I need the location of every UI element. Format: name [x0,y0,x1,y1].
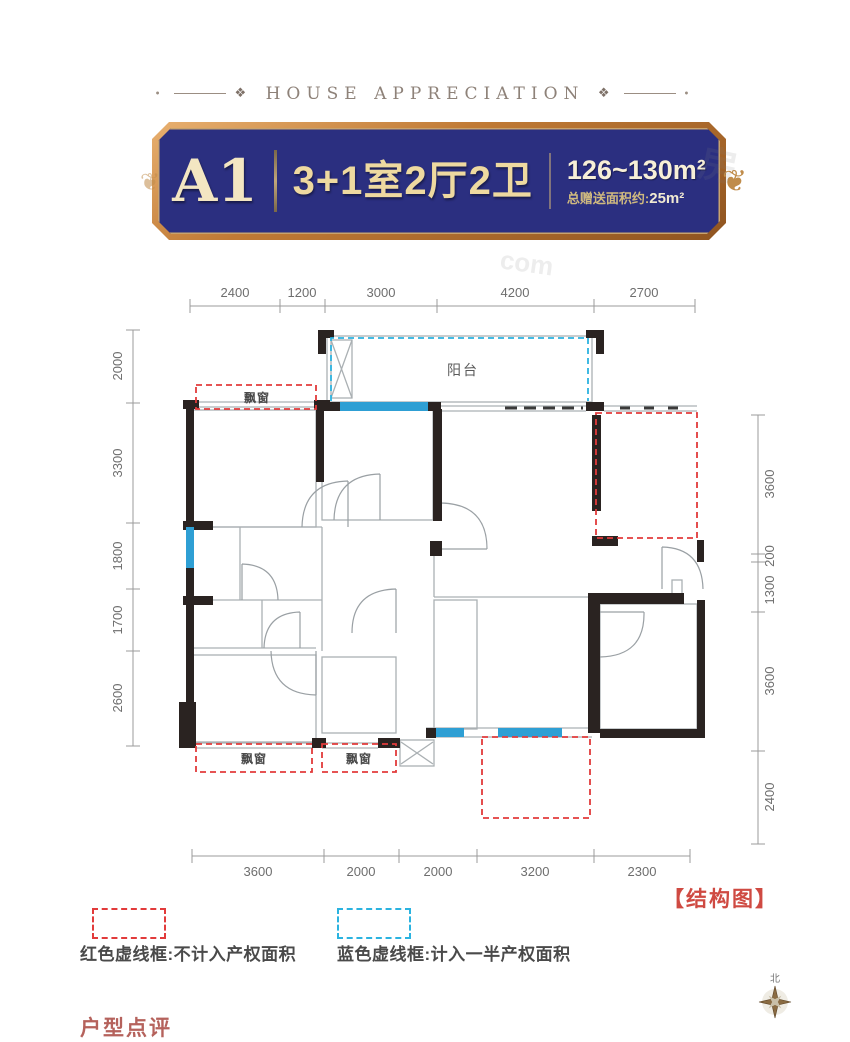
door-swings [242,474,703,695]
balcony-label: 阳台 [447,362,479,378]
dim-label: 2000 [110,352,125,381]
dim-label: 2400 [221,285,250,300]
dim-label: 1300 [762,576,777,605]
compass-icon: 北 [759,973,791,1018]
legend-blue-text: 蓝色虚线框:计入一半产权面积 [337,940,571,965]
dimension-lines [126,299,765,863]
floorplan-drawing: 2400 1200 3000 4200 2700 2000 3300 1800 … [0,0,850,1029]
dim-label: 2300 [628,864,657,879]
dim-label: 2700 [630,285,659,300]
compass-north-label: 北 [770,973,780,985]
dim-label: 2000 [347,864,376,879]
legend-blue-swatch [337,908,411,939]
dim-label: 4200 [501,285,530,300]
dim-label: 3600 [762,667,777,696]
room-labels: 阳台 飘窗 飘窗 飘窗 [241,362,479,766]
bay-window-label: 飘窗 [241,751,267,766]
dim-label: 200 [762,545,777,567]
structure-diagram-label: 【结构图】 [663,883,778,913]
dim-label: 2600 [110,684,125,713]
dim-label: 1700 [110,606,125,635]
dim-label: 3000 [367,285,396,300]
dim-label: 3300 [110,449,125,478]
footer-partial-heading: 户型点评 [80,1012,172,1042]
dim-label: 3200 [521,864,550,879]
dim-label: 1200 [288,285,317,300]
legend-red-swatch [92,908,166,939]
dim-label: 3600 [244,864,273,879]
floorplan-poster-page: { "header": { "title": "HOUSE APPRECIATI… [0,0,850,1029]
legend-red-text: 红色虚线框:不计入产权面积 [80,940,296,965]
dim-label: 1800 [110,542,125,571]
dim-label: 2000 [424,864,453,879]
bay-window-label: 飘窗 [244,390,270,405]
bay-window-label: 飘窗 [346,751,372,766]
dim-label: 2400 [762,783,777,812]
dim-label: 3600 [762,470,777,499]
